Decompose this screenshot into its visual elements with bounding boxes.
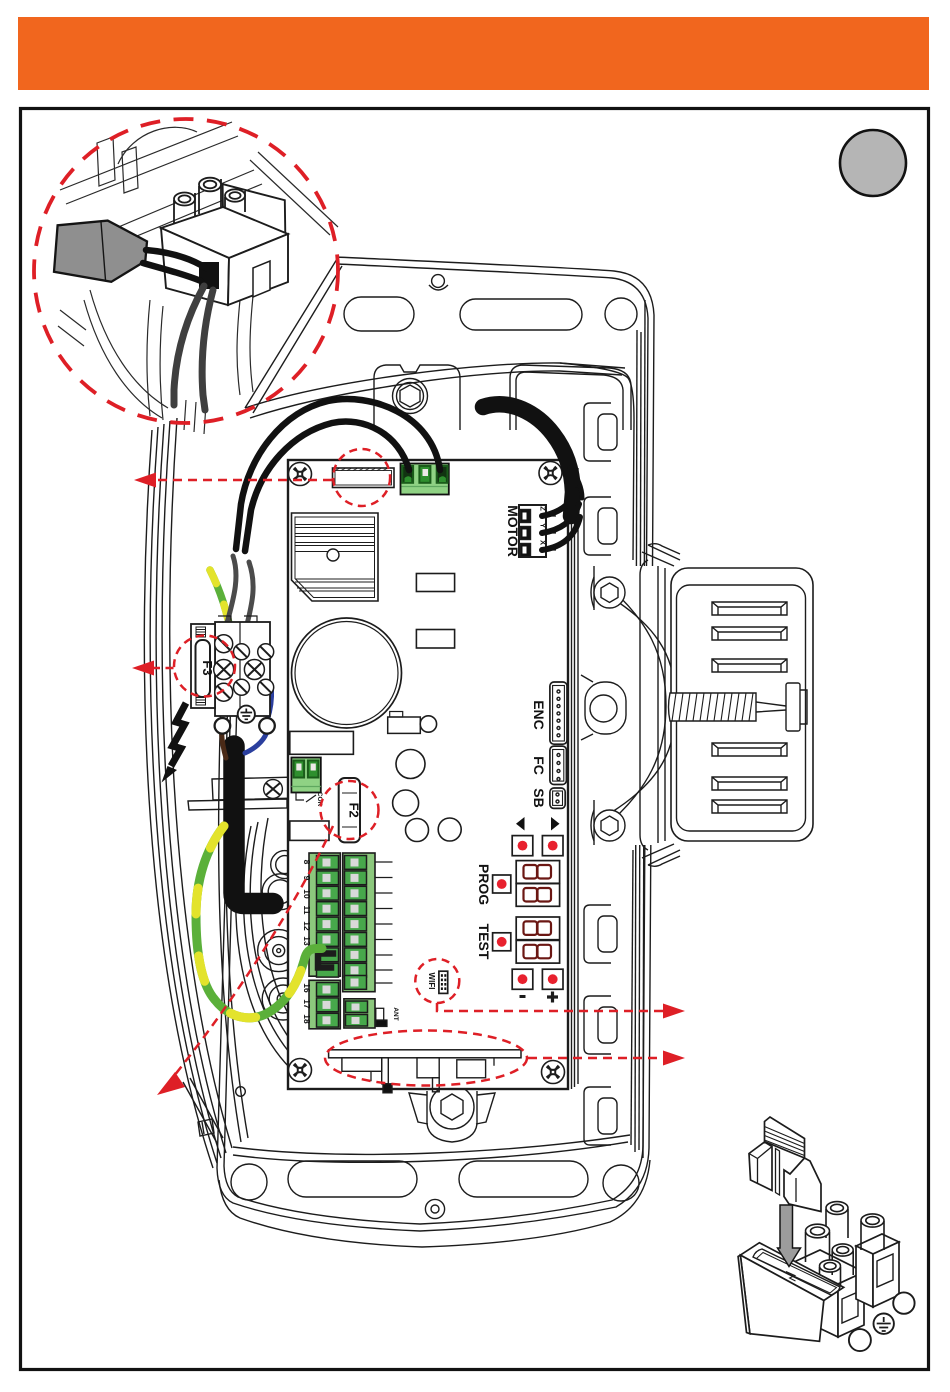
svg-text:TEST: TEST — [476, 924, 492, 960]
svg-text:MOTOR: MOTOR — [505, 505, 521, 557]
svg-text:16: 16 — [302, 983, 312, 993]
svg-text:ENC: ENC — [531, 700, 547, 730]
svg-text:11: 11 — [302, 906, 312, 915]
svg-text:18: 18 — [302, 1014, 312, 1024]
svg-text:F3: F3 — [200, 660, 215, 675]
svg-text:X: X — [539, 540, 548, 545]
svg-text:Y: Y — [539, 523, 548, 528]
svg-text:Z: Z — [539, 506, 548, 511]
svg-text:FC: FC — [531, 756, 547, 775]
svg-text:13: 13 — [302, 936, 312, 946]
svg-text:10: 10 — [302, 889, 312, 899]
svg-text:WIFI: WIFI — [427, 973, 436, 990]
svg-text:F2: F2 — [346, 803, 361, 818]
svg-text:PROG: PROG — [476, 864, 492, 905]
svg-text:ANT: ANT — [392, 1007, 399, 1020]
svg-text:17: 17 — [302, 999, 312, 1009]
svg-text:SB: SB — [531, 788, 547, 807]
svg-text:12: 12 — [302, 921, 312, 931]
svg-text:8: 8 — [302, 860, 312, 865]
svg-text:9: 9 — [302, 876, 312, 881]
